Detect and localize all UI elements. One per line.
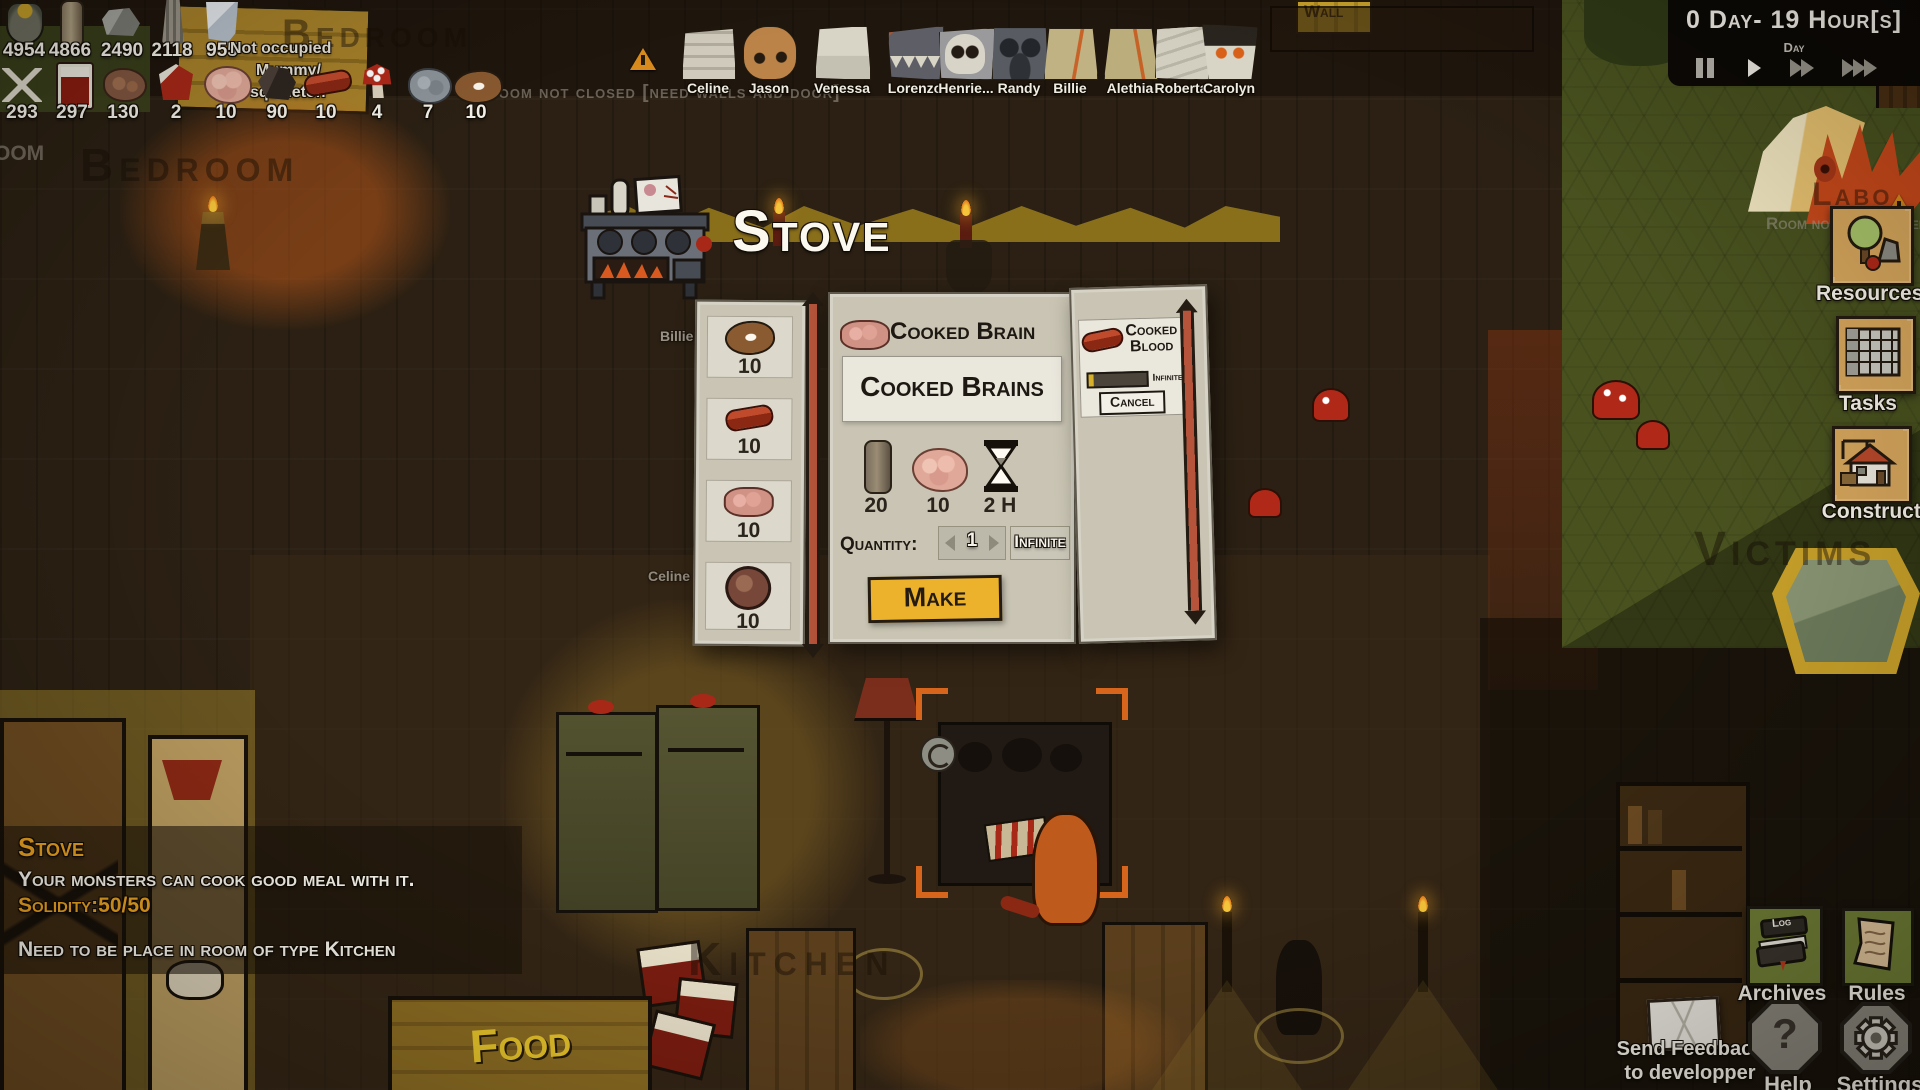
clock-speed-label: Day: [1668, 40, 1920, 55]
game-screen: Food Wall Bedroom Bedroom oom Ro: [0, 0, 1920, 1090]
infinite-button[interactable]: Infinite: [1010, 526, 1070, 560]
stove-illustration-icon: [578, 174, 718, 304]
rotate-icon-arrow: [928, 744, 952, 768]
ingredient-value: 20: [852, 494, 900, 518]
raw-meat-icon: [103, 68, 147, 102]
sausage-icon: [724, 403, 775, 433]
fridge[interactable]: [656, 705, 760, 911]
inventory-slot[interactable]: 10: [706, 398, 792, 461]
tasks-icon: [1839, 319, 1907, 385]
inventory-qty: 10: [707, 435, 791, 460]
mushroom-cluster[interactable]: [1592, 380, 1640, 420]
sidebar-item-tasks[interactable]: [1836, 316, 1916, 394]
inventory-qty: 10: [706, 610, 790, 635]
stove-window-title: Stove: [732, 198, 892, 265]
archives-log-label: Log: [1771, 916, 1791, 930]
fridge-handle: [566, 752, 642, 756]
recipe-name: Cooked Brain: [890, 318, 1035, 346]
stove-pot: [958, 742, 992, 772]
room-label-kitchen: Kitchen: [688, 932, 896, 986]
play-button[interactable]: [1748, 59, 1761, 77]
settings-gear-icon: [1848, 1010, 1904, 1066]
resource-count: 293: [0, 102, 44, 124]
cooked-brain-icon: [840, 320, 890, 350]
stove-inventory-panel: 10 10 10 10: [693, 300, 807, 647]
rules-scroll-icon: [1845, 911, 1905, 977]
lamp-base: [868, 874, 906, 884]
stove-pot: [1050, 744, 1082, 772]
ingredient-value: 10: [914, 494, 962, 518]
pause-button[interactable]: [1696, 58, 1718, 78]
resource-count: 4: [355, 102, 399, 124]
book: [1628, 806, 1642, 844]
inventory-qty: 10: [707, 519, 791, 544]
sidebar-label-construction: Construction: [1812, 500, 1920, 524]
quantity-increase-arrow[interactable]: [989, 535, 999, 551]
mushroom-small[interactable]: [1636, 420, 1670, 450]
lamp-pole[interactable]: [884, 712, 890, 880]
quantity-stepper: 1: [938, 526, 1006, 560]
gray-brain-icon: [408, 68, 452, 104]
tooltip-solidity: Solidity:50/50: [18, 894, 151, 918]
ingredient-time: 2 H: [976, 494, 1024, 518]
help-question-glyph: ?: [1748, 1010, 1822, 1058]
tooltip-description: Your monsters can cook good meal with it…: [18, 868, 415, 892]
sidebar-label-resources: Resources: [1816, 282, 1920, 306]
resource-count: 10: [204, 102, 248, 124]
mushroom-indoor[interactable]: [1248, 488, 1282, 518]
monster-orange[interactable]: [1032, 812, 1100, 926]
construction-icon: [1835, 429, 1903, 495]
skull-plaque: [946, 240, 992, 294]
selection-bracket-tr: [1096, 688, 1128, 720]
sausage-icon: [1080, 326, 1125, 354]
clock-time: 0 Day- 19 Hour[s]: [1668, 6, 1920, 35]
map-monster-name: Billie: [660, 328, 693, 344]
wood-log-icon: [864, 440, 892, 494]
archives-button[interactable]: Log: [1747, 906, 1823, 986]
inventory-slot[interactable]: 10: [707, 316, 793, 379]
resource-count: 10: [304, 102, 348, 124]
queue-progress-bar: [1086, 371, 1148, 389]
selection-bracket-bl: [916, 866, 948, 898]
selection-ring: [1254, 1008, 1344, 1064]
inventory-slot[interactable]: 10: [705, 562, 791, 631]
sidebar-label-tasks: Tasks: [1816, 392, 1920, 416]
fridge-handle: [668, 748, 744, 752]
rules-button[interactable]: [1842, 908, 1914, 986]
queue-item-name: Cooked Blood: [1121, 322, 1182, 356]
tooltip-requirement: Need to be place in room of type Kitchen: [18, 938, 396, 962]
crafting-queue-panel: Cooked Blood Infinite Cancel: [1069, 284, 1217, 644]
settings-button[interactable]: [1840, 1002, 1912, 1074]
make-button[interactable]: Make: [868, 575, 1003, 623]
inventory-slot[interactable]: 10: [706, 480, 792, 543]
settings-label: Settings: [1810, 1072, 1920, 1090]
sidebar-item-construction[interactable]: [1832, 426, 1912, 504]
queue-infinite-label: Infinite: [1152, 372, 1182, 384]
book: [1648, 810, 1662, 844]
resource-count: 130: [101, 102, 145, 124]
quantity-label: Quantity:: [840, 534, 917, 556]
recipe-product-box: Cooked Brains: [842, 356, 1062, 422]
fridge[interactable]: [556, 712, 658, 913]
room-label-bedroom: Bedroom: [80, 138, 299, 192]
recipe-panel: Cooked Brain Cooked Brains 20 10 2 H Qua…: [828, 292, 1076, 644]
candle-flame-bedroom: [208, 196, 218, 212]
blood-splat: [588, 700, 614, 714]
hourglass-icon: [982, 440, 1020, 492]
queue-progress-fill: [1088, 374, 1093, 386]
resource-count: 2118: [150, 40, 194, 62]
raw-meat-ball-icon: [725, 566, 771, 610]
inventory-qty: 10: [708, 355, 792, 380]
money-bag-icon: [6, 2, 44, 44]
stove-pot: [1002, 738, 1042, 772]
steak-icon: [723, 319, 776, 358]
glass-icon: [206, 2, 238, 42]
map-monster-name: Celine: [648, 568, 690, 584]
warm-glow: [860, 980, 1180, 1090]
cancel-button[interactable]: Cancel: [1099, 390, 1166, 415]
queue-item-card: Cooked Blood Infinite Cancel: [1078, 317, 1187, 418]
resource-count: 2: [154, 102, 198, 124]
corner-menu: Log Archives Rules Send Feedback to deve…: [1600, 890, 1920, 1090]
stove-tooltip: Stove Your monsters can cook good meal w…: [0, 826, 522, 974]
bones-icon: [2, 68, 42, 102]
brain-icon: [204, 66, 252, 104]
wall-candle-right-flame: [961, 200, 971, 216]
resource-count: 4866: [48, 40, 92, 62]
recipe-product-name: Cooked Brains: [843, 371, 1061, 403]
resource-count: 4954: [2, 40, 46, 62]
floor-candle-flame: [1418, 896, 1428, 912]
room-label-victims: Victims: [1694, 522, 1876, 577]
blood-splat: [690, 694, 716, 708]
warning-icon[interactable]: [630, 48, 656, 70]
selection-bracket-tl: [916, 688, 948, 720]
resource-count: 297: [50, 102, 94, 124]
clock-panel: 0 Day- 19 Hour[s] Day: [1668, 0, 1920, 86]
resources-icon: [1833, 209, 1905, 277]
resource-count: 90: [255, 102, 299, 124]
cooked-brain-icon: [724, 487, 774, 517]
resource-count: 2490: [100, 40, 144, 62]
mushroom-indoor[interactable]: [1312, 388, 1350, 422]
room-warning-partial: oom: [0, 134, 44, 168]
bookshelf-shelf: [1616, 846, 1742, 851]
selection-bracket-br: [1096, 866, 1128, 898]
top-shelf: [1270, 6, 1534, 52]
queue-scrollbar[interactable]: [1179, 299, 1188, 629]
floor-candle-flame: [1222, 896, 1232, 912]
bedroom-glow: [120, 90, 450, 330]
brain-icon: [912, 448, 968, 492]
food-crate-label: Food: [468, 1013, 573, 1074]
sidebar-item-resources[interactable]: [1830, 206, 1914, 286]
resource-count: 7: [406, 102, 450, 124]
tooltip-title: Stove: [18, 832, 84, 863]
map-label-not-occupied: Not occupied: [230, 40, 331, 58]
resource-count: 10: [454, 102, 498, 124]
